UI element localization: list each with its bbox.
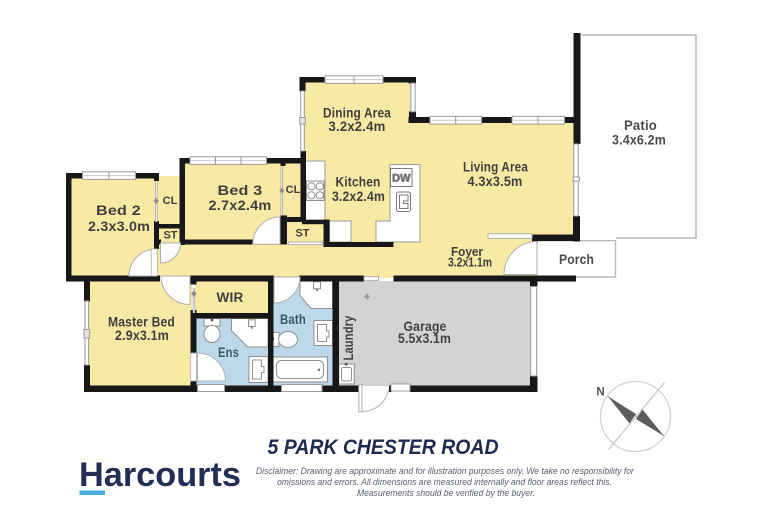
svg-text:4.3x3.5m: 4.3x3.5m xyxy=(468,174,523,189)
svg-text:N: N xyxy=(596,387,604,399)
svg-text:Harcourts: Harcourts xyxy=(79,456,241,494)
svg-text:Disclaimer: Drawing are approx: Disclaimer: Drawing are approximate and … xyxy=(256,466,635,476)
svg-text:Measurements should be verifie: Measurements should be verified by the b… xyxy=(357,488,535,498)
svg-text:ST: ST xyxy=(163,230,177,242)
svg-text:2.9x3.1m: 2.9x3.1m xyxy=(115,328,169,343)
svg-text:Ens: Ens xyxy=(218,345,239,360)
svg-text:Bed 2: Bed 2 xyxy=(96,203,141,218)
svg-text:2.7x2.4m: 2.7x2.4m xyxy=(209,198,272,213)
svg-text:WIR: WIR xyxy=(217,290,244,305)
svg-text:Laundry: Laundry xyxy=(341,315,356,360)
svg-text:CL: CL xyxy=(286,184,301,196)
svg-text:DW: DW xyxy=(392,173,411,185)
svg-text:Patio: Patio xyxy=(624,118,657,133)
svg-text:Living Area: Living Area xyxy=(463,160,528,175)
svg-text:3.2x2.4m: 3.2x2.4m xyxy=(329,119,386,134)
svg-text:ST: ST xyxy=(295,228,309,240)
svg-text:5.5x3.1m: 5.5x3.1m xyxy=(398,331,451,346)
svg-text:Bath: Bath xyxy=(280,312,306,327)
svg-text:Kitchen: Kitchen xyxy=(336,175,381,190)
svg-text:Bed 3: Bed 3 xyxy=(218,183,263,198)
svg-text:5 PARK CHESTER ROAD: 5 PARK CHESTER ROAD xyxy=(268,436,499,459)
svg-text:Porch: Porch xyxy=(559,252,594,267)
svg-text:omissions and errors. All dime: omissions and errors. All dimensions are… xyxy=(277,477,612,487)
svg-text:3.2x2.4m: 3.2x2.4m xyxy=(332,189,385,204)
svg-text:3.2x1.1m: 3.2x1.1m xyxy=(448,256,492,270)
svg-text:2.3x3.0m: 2.3x3.0m xyxy=(88,219,150,234)
svg-text:CL: CL xyxy=(163,195,178,207)
svg-text:3.4x6.2m: 3.4x6.2m xyxy=(612,133,666,148)
